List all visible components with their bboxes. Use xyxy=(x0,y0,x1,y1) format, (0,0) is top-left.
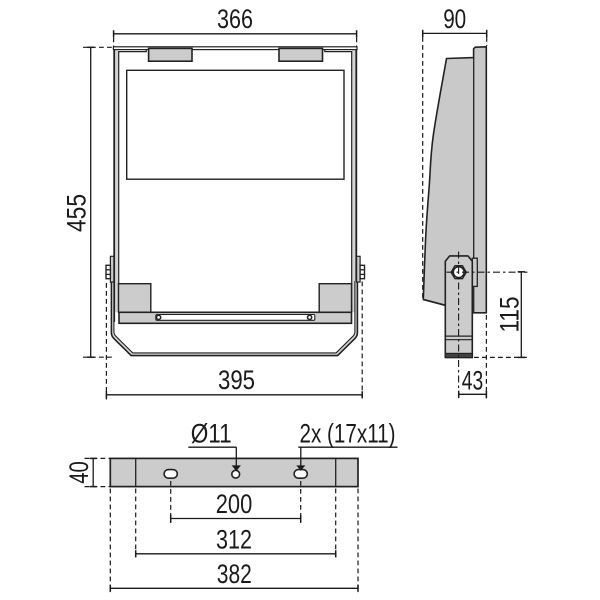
svg-text:382: 382 xyxy=(217,559,252,589)
svg-text:90: 90 xyxy=(443,4,466,34)
svg-text:455: 455 xyxy=(62,194,92,232)
svg-text:2x (17x11): 2x (17x11) xyxy=(300,419,396,449)
svg-text:312: 312 xyxy=(216,524,252,554)
svg-text:395: 395 xyxy=(218,365,255,395)
svg-text:366: 366 xyxy=(217,4,253,34)
svg-text:200: 200 xyxy=(216,489,253,519)
svg-text:43: 43 xyxy=(462,365,484,395)
svg-text:115: 115 xyxy=(495,297,525,333)
svg-text:Ø11: Ø11 xyxy=(191,419,232,449)
svg-text:40: 40 xyxy=(64,461,94,484)
